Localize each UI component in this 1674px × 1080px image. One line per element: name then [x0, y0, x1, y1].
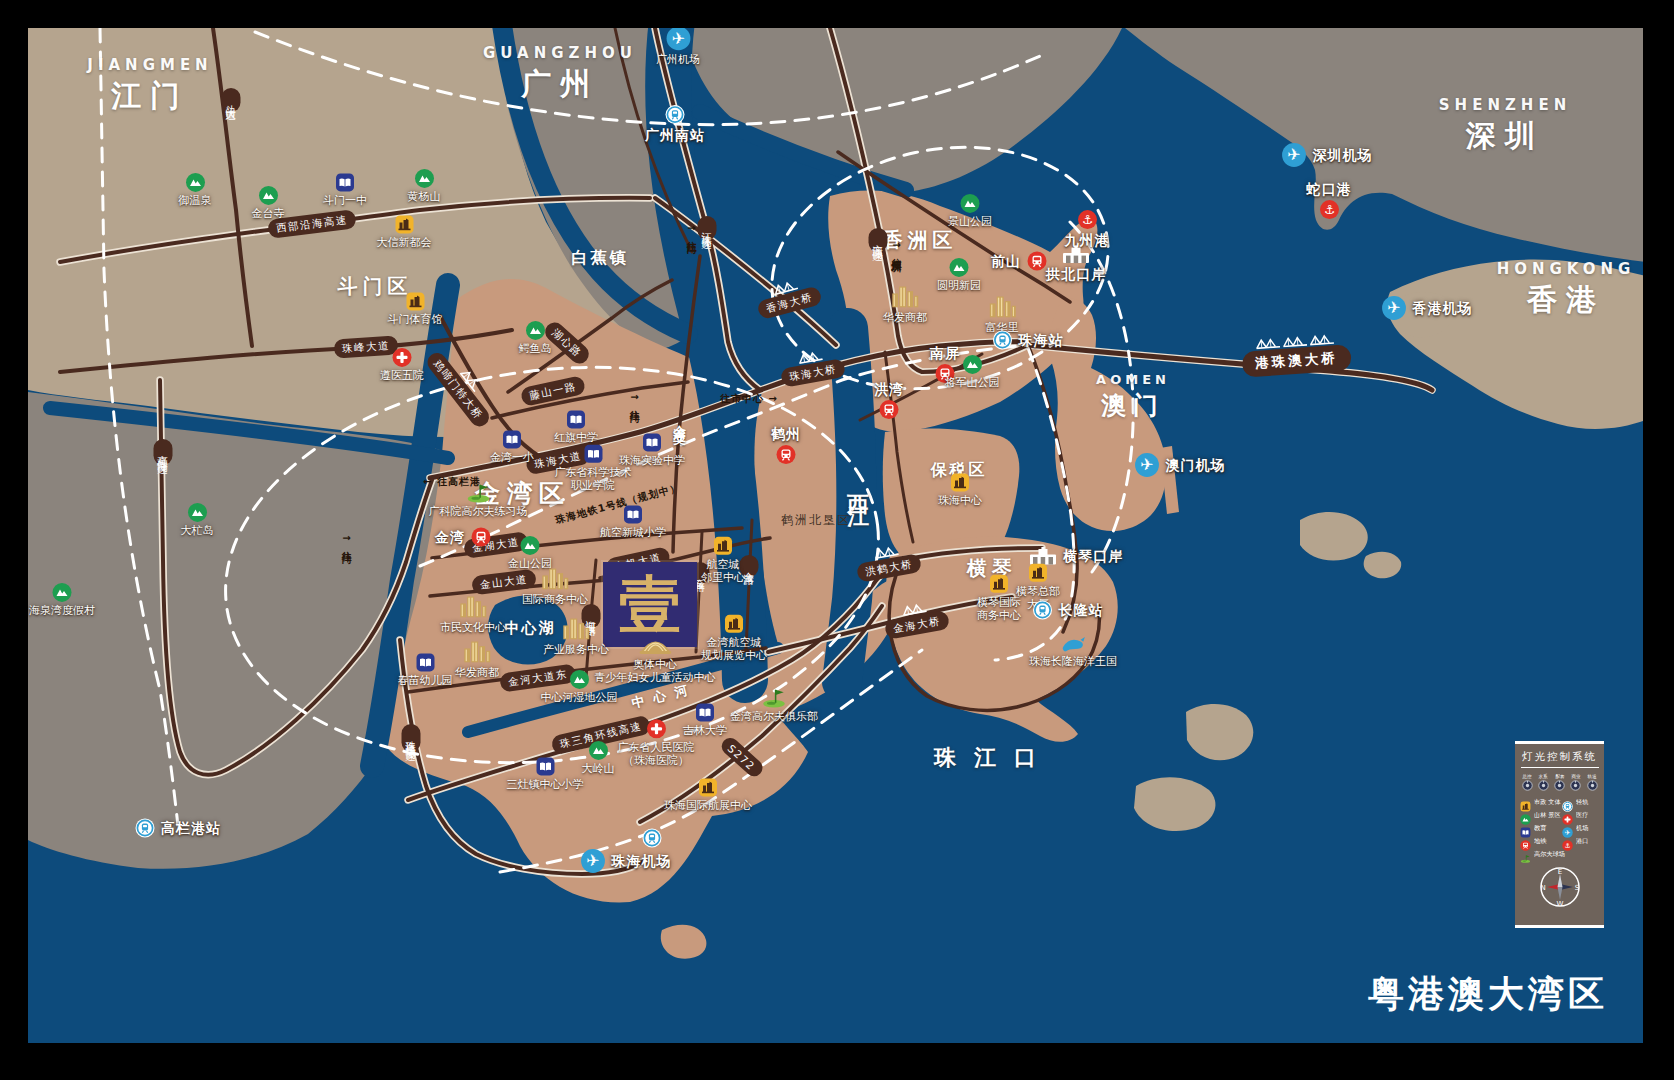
stadium-icon	[638, 636, 672, 656]
map-terrain	[0, 0, 1674, 1080]
direction-label: ↑往广州深圳	[889, 241, 903, 255]
knob-label: 配套	[1555, 773, 1564, 778]
goldbld-icon	[540, 564, 570, 591]
compass: ENSW	[1537, 864, 1583, 914]
marker-rail: 广州南站	[645, 105, 705, 144]
mountain-icon	[588, 740, 608, 760]
marker-label: 鳄鱼岛	[519, 342, 552, 355]
marker-label: 珠海机场	[612, 853, 672, 870]
mountain-icon	[258, 185, 278, 205]
legend-items: 市政 文体轻轨山林 景区医疗教育✈机场地铁⚓港口高尔夫球场	[1520, 797, 1600, 860]
metro-icon	[1520, 836, 1531, 847]
marker-label: 御温泉	[179, 194, 212, 207]
marker-metro: 鹤州	[771, 426, 801, 465]
mountain-icon	[52, 582, 72, 602]
education-icon	[566, 409, 586, 429]
water-label: 珠江口	[934, 743, 1054, 773]
marker-customs: 拱北口岸	[1046, 245, 1106, 283]
city-label: SHENZHEN深圳	[1439, 96, 1571, 157]
city-label: JIANGMEN江门	[87, 56, 212, 117]
svg-text:⚓: ⚓	[1323, 202, 1334, 217]
legend-item-label: 市政 文体	[1534, 798, 1561, 807]
marker-mountain: 御温泉	[179, 172, 212, 207]
marker-label: 广东省人民医院 （珠海医院）	[618, 741, 695, 767]
marker-rail: 长隆站	[1033, 600, 1104, 620]
city-name-en: JIANGMEN	[87, 56, 212, 74]
marker-label: 斗门一中	[323, 194, 367, 207]
airport-icon: ✈	[1382, 296, 1407, 321]
marker-civic: 珠海国际航展中心	[664, 777, 752, 812]
marker-label: 珠海长隆海洋王国	[1029, 655, 1117, 668]
marker-goldbld: 华发商都	[883, 282, 927, 324]
marker-label: 深圳机场	[1313, 147, 1373, 164]
city-name-zh: 江门	[87, 76, 212, 117]
marker-mountain: 鳄鱼岛	[519, 320, 552, 355]
civic-icon	[394, 214, 414, 234]
road-label: 斗门大道	[222, 88, 241, 112]
marker-label: 横琴口岸	[1063, 548, 1123, 565]
svg-text:✈: ✈	[1387, 298, 1400, 317]
metro-icon	[879, 399, 899, 419]
marker-education: 红旗中学	[554, 409, 598, 444]
marker-label: 春苗幼儿园	[398, 674, 453, 687]
map-canvas: 壹 灯光控制系统 总控水系配套商业轨道 市政 文体轻轨山林 景区医疗教育✈机场地…	[0, 0, 1674, 1080]
mountain-icon	[962, 354, 982, 374]
marker-rail	[642, 828, 662, 848]
marker-label: 澳门机场	[1166, 457, 1226, 474]
hospital-icon	[646, 719, 666, 739]
education-icon	[583, 444, 603, 464]
legend-item-label: 地铁	[1534, 837, 1546, 846]
civic-icon	[713, 536, 733, 556]
legend-item-label: 教育	[1534, 824, 1546, 833]
marker-label: 圆明新园	[937, 279, 981, 292]
marker-mountain: 大岭山	[582, 740, 615, 775]
port-icon: ⚓	[1077, 210, 1097, 230]
knob-label: 水系	[1539, 773, 1548, 778]
marker-whale: 珠海长隆海洋王国	[1029, 636, 1117, 668]
city-name-zh: 深圳	[1439, 116, 1571, 157]
marker-port: ⚓九州港	[1065, 210, 1110, 249]
civic-icon	[698, 777, 718, 797]
direction-label: ↑往江门	[684, 224, 698, 236]
marker-label: 大岭山	[582, 762, 615, 775]
svg-text:✈: ✈	[671, 29, 684, 48]
marker-mountain: 黄杨山	[408, 168, 441, 203]
marker-label: 国际商务中心	[522, 593, 588, 606]
svg-text:⚓: ⚓	[1081, 212, 1092, 227]
marker-label: 景山公园	[948, 215, 992, 228]
legend-item-education: 教育	[1520, 823, 1562, 834]
marker-label: 高栏港站	[161, 820, 221, 837]
airport-icon: ✈	[1562, 823, 1573, 834]
marker-label: 鹤州	[771, 426, 801, 443]
marker-label: 香港机场	[1413, 300, 1473, 317]
mountain-icon	[185, 172, 205, 192]
legend-item-civic: 市政 文体	[1520, 797, 1562, 808]
goldbld-icon	[561, 614, 591, 641]
legend-panel: 灯光控制系统 总控水系配套商业轨道 市政 文体轻轨山林 景区医疗教育✈机场地铁⚓…	[1515, 741, 1604, 928]
marker-goldbld: 国际商务中心	[522, 564, 588, 606]
mountain-icon	[949, 257, 969, 277]
golf-icon	[1520, 849, 1531, 860]
marker-label: 长隆站	[1059, 602, 1104, 619]
legend-item-label: 轻轨	[1576, 798, 1588, 807]
marker-rail: 高栏港站	[135, 818, 221, 838]
marker-label: 洪湾	[874, 381, 904, 398]
mountain-icon	[414, 168, 434, 188]
legend-item-label: 港口	[1576, 837, 1588, 846]
education-icon	[695, 702, 715, 722]
marker-education: 广东省科学技术 职业学院	[555, 444, 632, 492]
marker-label: 珠海国际航展中心	[664, 799, 752, 812]
goldbld-icon	[458, 592, 488, 619]
mountain-icon	[569, 669, 589, 689]
rail-icon	[665, 105, 685, 125]
civic-icon	[1028, 563, 1048, 583]
marker-label: 广东省科学技术 职业学院	[555, 466, 632, 492]
legend-knob-row: 总控水系配套商业轨道	[1520, 773, 1600, 791]
svg-text:N: N	[1540, 884, 1545, 892]
port-icon: ⚓	[1562, 836, 1573, 847]
marker-label: 蛇口港	[1307, 181, 1352, 198]
marker-label: 大杧岛	[181, 524, 214, 537]
project-logo-glyph: 壹	[619, 574, 681, 636]
legend-knob-商业[interactable]: 商业	[1568, 773, 1583, 791]
marker-label: 前山	[991, 253, 1021, 270]
marker-label: 金湾一小	[490, 451, 534, 464]
marker-education: 春苗幼儿园	[398, 652, 453, 687]
marker-label: 遵医五院	[380, 369, 424, 382]
mountain-icon	[520, 535, 540, 555]
legend-item-port: ⚓港口	[1562, 836, 1600, 847]
marker-label: 航空新城小学	[600, 526, 666, 539]
marker-goldbld: 华发商都	[455, 637, 499, 679]
mountain-icon	[525, 320, 545, 340]
svg-text:✈: ✈	[1287, 145, 1300, 164]
legend-item-mountain: 山林 景区	[1520, 810, 1562, 821]
marker-label: 广州机场	[656, 53, 700, 66]
marker-label: 横琴国际 商务中心	[977, 596, 1021, 622]
district-label: 白蕉镇	[572, 248, 629, 269]
city-name-zh: 广州	[483, 64, 637, 105]
legend-item-label: 机场	[1576, 824, 1588, 833]
marker-metro: 洪湾	[874, 381, 904, 420]
legend-knob-总控[interactable]: 总控	[1520, 773, 1535, 791]
district-label: 鹤洲北垦区	[781, 512, 851, 529]
marker-port: ⚓蛇口港	[1307, 181, 1352, 220]
knob-dial-icon	[1538, 780, 1549, 791]
marker-airport: ✈香港机场	[1382, 296, 1473, 321]
marker-label: 市民文化中心	[440, 621, 506, 634]
airport-icon: ✈	[666, 26, 691, 51]
knob-dial-icon	[1570, 780, 1581, 791]
marker-label: 珠海站	[1019, 332, 1064, 349]
marker-label: 大信新都会	[377, 236, 432, 249]
direction-label: ↑往斗门	[339, 534, 353, 546]
metro-icon	[776, 444, 796, 464]
civic-icon	[724, 614, 744, 634]
mountain-icon	[1520, 810, 1531, 821]
hospital-icon	[1562, 810, 1573, 821]
marker-label: 将军山公园	[945, 376, 1000, 389]
mountain-icon	[960, 193, 980, 213]
marker-goldbld: 市民文化中心	[440, 592, 506, 634]
marker-label: 华发商都	[883, 311, 927, 324]
rail-icon	[135, 818, 155, 838]
civic-icon	[405, 291, 425, 311]
legend-item-golf: 高尔夫球场	[1520, 849, 1562, 860]
marker-civic: 大信新都会	[377, 214, 432, 249]
education-icon	[535, 756, 555, 776]
legend-item-hospital: 医疗	[1562, 810, 1600, 821]
marker-label: 广州南站	[645, 127, 705, 144]
legend-knob-轨道[interactable]: 轨道	[1585, 773, 1600, 791]
legend-knob-配套[interactable]: 配套	[1552, 773, 1567, 791]
goldbld-icon	[987, 292, 1017, 319]
customs-icon	[1062, 245, 1090, 264]
knob-dial-icon	[1522, 780, 1533, 791]
legend-item-label: 医疗	[1576, 811, 1588, 820]
airport-icon: ✈	[1282, 143, 1307, 168]
road-label: 广澳高速	[869, 228, 888, 252]
marker-metro: 前山	[991, 251, 1047, 271]
marker-hospital: 广东省人民医院 （珠海医院）	[618, 719, 695, 767]
marker-education: 金湾一小	[490, 429, 534, 464]
direction-label: ↑往斗门	[627, 393, 641, 405]
legend-item-airport: ✈机场	[1562, 823, 1600, 834]
marker-civic: 航空城 邻里中心	[701, 536, 745, 584]
education-icon	[1520, 823, 1531, 834]
education-icon	[335, 172, 355, 192]
marker-mountain: 景山公园	[948, 193, 992, 228]
marker-education: 三灶镇中心小学	[507, 756, 584, 791]
marker-mountain: 将军山公园	[945, 354, 1000, 389]
city-label: AOMEN澳门	[1096, 372, 1170, 422]
svg-text:✈: ✈	[586, 851, 599, 870]
city-name-en: HONGKONG	[1497, 260, 1636, 278]
marker-airport: ✈珠海机场	[581, 849, 672, 874]
marker-goldbld: 富华里	[986, 292, 1019, 334]
marker-golf: 金湾高尔夫俱乐部	[730, 686, 818, 723]
marker-label: 金湾高尔夫俱乐部	[730, 710, 818, 723]
marker-civic: 斗门体育馆	[388, 291, 443, 326]
city-label: GUANGZHOU广州	[483, 44, 637, 105]
marker-label: 金湾	[435, 529, 465, 546]
city-name-en: GUANGZHOU	[483, 44, 637, 62]
direction-label: 往市中心 →	[720, 392, 778, 406]
marker-airport: ✈深圳机场	[1282, 143, 1373, 168]
marker-mountain: 中心河湿地公园	[541, 669, 618, 704]
svg-text:✈: ✈	[1140, 455, 1153, 474]
hospital-icon	[392, 347, 412, 367]
marker-label: 红旗中学	[554, 431, 598, 444]
marker-golf: 广科院高尔夫练习场	[429, 481, 528, 518]
marker-rail: 珠海站	[993, 330, 1064, 350]
marker-airport: ✈澳门机场	[1135, 453, 1226, 478]
airport-icon: ✈	[1135, 453, 1160, 478]
education-icon	[623, 504, 643, 524]
marker-mountain: 圆明新园	[937, 257, 981, 292]
metro-icon	[1027, 251, 1047, 271]
road-label: 珠海机场高速	[402, 724, 421, 752]
marker-label: 金湾航空城 规划展览中心	[701, 636, 767, 662]
marker-label: 中心河湿地公园	[541, 691, 618, 704]
city-name-zh: 澳门	[1096, 389, 1170, 422]
knob-label: 商业	[1571, 773, 1580, 778]
marker-label: 斗门体育馆	[388, 313, 443, 326]
civic-icon	[1520, 797, 1531, 808]
knob-dial-icon	[1587, 780, 1598, 791]
civic-icon	[950, 472, 970, 492]
city-label: HONGKONG香港	[1497, 260, 1636, 321]
goldbld-icon	[890, 282, 920, 309]
marker-label: 海泉湾度假村	[29, 604, 95, 617]
education-icon	[502, 429, 522, 449]
marker-label: 金台寺	[252, 207, 285, 220]
marker-label: 黄杨山	[408, 190, 441, 203]
knob-label: 轨道	[1588, 773, 1597, 778]
whale-icon	[1060, 636, 1086, 653]
marker-label: 广科院高尔夫练习场	[429, 505, 528, 518]
goldbld-icon	[462, 637, 492, 664]
marker-civic: 金湾航空城 规划展览中心	[701, 614, 767, 662]
marker-metro: 金湾	[435, 527, 491, 547]
rail-icon	[1033, 600, 1053, 620]
knob-dial-icon	[1554, 780, 1565, 791]
port-icon: ⚓	[1319, 199, 1339, 219]
road-label: 江珠高速	[698, 216, 717, 240]
legend-knob-水系[interactable]: 水系	[1536, 773, 1551, 791]
marker-airport: ✈广州机场	[656, 26, 700, 66]
golf-icon	[465, 481, 491, 503]
compass-rose-icon: ENSW	[1537, 864, 1583, 910]
svg-text:⚓: ⚓	[1564, 842, 1570, 850]
marker-education: 斗门一中	[323, 172, 367, 207]
road-label: 高栏港高速	[154, 439, 173, 465]
civic-icon	[989, 574, 1009, 594]
marker-label: 拱北口岸	[1046, 266, 1106, 283]
marker-mountain: 海泉湾度假村	[29, 582, 95, 617]
city-name-en: AOMEN	[1096, 372, 1170, 387]
rail-icon	[642, 828, 662, 848]
legend-item-label: 高尔夫球场	[1534, 850, 1565, 859]
knob-label: 总控	[1523, 773, 1532, 778]
svg-text:S: S	[1574, 884, 1579, 892]
greater-bay-area-map: 壹 灯光控制系统 总控水系配套商业轨道 市政 文体轻轨山林 景区医疗教育✈机场地…	[0, 0, 1674, 1080]
city-name-en: SHENZHEN	[1439, 96, 1571, 114]
marker-civic: 横琴国际 商务中心	[977, 574, 1021, 622]
project-logo: 壹	[603, 562, 697, 647]
education-icon	[415, 652, 435, 672]
water-label: 西江	[843, 477, 873, 497]
legend-item-metro: 地铁	[1520, 836, 1562, 847]
marker-label: 华发商都	[455, 666, 499, 679]
mountain-icon	[187, 502, 207, 522]
golf-icon	[761, 686, 787, 708]
metro-icon	[471, 527, 491, 547]
city-name-zh: 香港	[1497, 280, 1636, 321]
education-icon	[642, 432, 662, 452]
direction-label: 金湾立交	[671, 415, 688, 423]
svg-text:W: W	[1556, 900, 1563, 908]
rail-icon	[1562, 797, 1573, 808]
legend-item-rail: 轻轨	[1562, 797, 1600, 808]
marker-label: 珠海中心	[938, 494, 982, 507]
marker-mountain: 金台寺	[252, 185, 285, 220]
legend-item-label: 山林 景区	[1534, 811, 1561, 820]
rail-icon	[993, 330, 1013, 350]
map-title: 粤港澳大湾区	[1368, 970, 1608, 1019]
airport-icon: ✈	[581, 849, 606, 874]
marker-civic: 珠海中心	[938, 472, 982, 507]
legend-title: 灯光控制系统	[1521, 750, 1599, 768]
bridge-label: 港珠澳大桥	[1241, 332, 1352, 377]
marker-education: 航空新城小学	[600, 504, 666, 539]
marker-label: 三灶镇中心小学	[507, 778, 584, 791]
marker-hospital: 遵医五院	[380, 347, 424, 382]
marker-mountain: 大杧岛	[181, 502, 214, 537]
marker-label: 航空城 邻里中心	[701, 558, 745, 584]
